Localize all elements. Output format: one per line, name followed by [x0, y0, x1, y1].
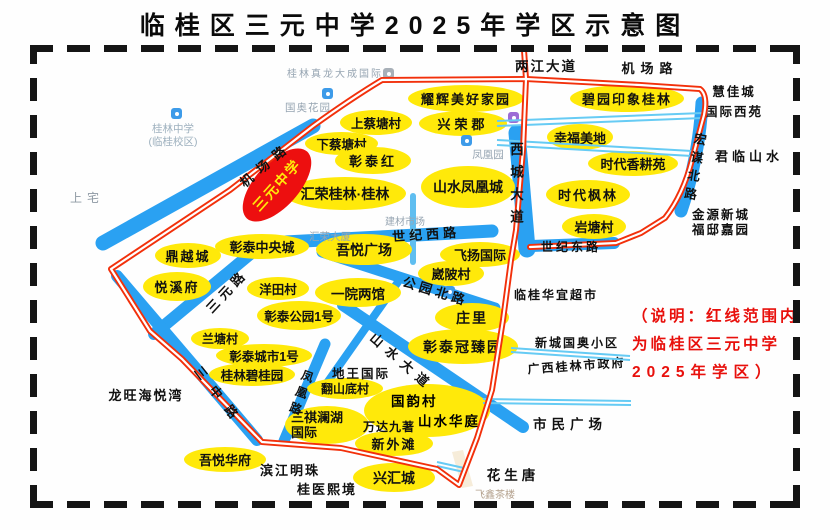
building-block — [452, 450, 473, 488]
road-label-liangjiang: 两江大道 — [512, 56, 580, 74]
road-label-shijidong: 世纪东路 — [536, 238, 606, 254]
legend-note-line1: （说明：红线范围内 — [632, 303, 799, 331]
poi-huirong-dasha: 汇荣大厦 — [300, 229, 360, 244]
poi-gzx-line1: 桂林中学 — [152, 123, 194, 136]
legend-note-line2: 为临桂区三元中学 — [632, 331, 799, 359]
road-label-shijixi: 世纪西路 — [391, 222, 460, 245]
poi-marker-icon — [461, 135, 472, 146]
poi-guilin-middle-school: 桂林中学 (临桂校区) — [133, 123, 213, 149]
legend-note-line3: 2025年学区） — [632, 359, 799, 387]
estate-yiyuan: 一院两馆 — [315, 278, 401, 307]
page-title: 临桂区三元中学2025年学区示意图 — [0, 6, 830, 42]
place-huijiacheng-line1: 慧佳城 — [712, 82, 756, 102]
estate-shangcaitang: 上蔡塘村 — [340, 110, 412, 135]
place-jinyuan-line1: 金源新城 — [692, 208, 750, 223]
estate-guanzhen: 彰泰冠臻园 — [408, 329, 518, 364]
estate-gongyuan1hao: 彰泰公园1号 — [257, 301, 341, 330]
poi-marker-icon — [322, 88, 333, 99]
poi-zhenlong: 桂林真龙大成国际 — [285, 65, 385, 80]
place-diwang: 地王国际 — [321, 363, 401, 382]
place-jinyuan: 金源新城 福邸嘉园 — [676, 208, 766, 238]
place-longwang: 龙旺海悦湾 — [96, 385, 196, 404]
poi-marker-icon — [171, 108, 182, 119]
estate-fenghuangcheng: 山水凤凰城 — [421, 166, 515, 208]
place-huijiacheng: 慧佳城 国际西苑 — [694, 82, 774, 122]
place-huayi: 临桂华宜超市 — [506, 286, 606, 303]
estate-yaohui: 耀辉美好家园 — [408, 85, 524, 112]
estate-fenglin: 时代枫林 — [546, 180, 630, 209]
place-huijiacheng-line2: 国际西苑 — [705, 102, 763, 122]
poi-marker-icon — [508, 112, 519, 123]
poi-gzx-line2: (临桂校区) — [149, 136, 198, 149]
estate-guoyun-label: 国韵村 — [391, 390, 438, 410]
estate-xianggeng: 时代香耕苑 — [588, 151, 678, 176]
legend-note: （说明：红线范围内 为临桂区三元中学 2025年学区） — [632, 303, 799, 387]
estate-xingfu: 幸福美地 — [547, 124, 613, 150]
poi-feixin-chalou: 飞鑫茶楼 — [465, 486, 525, 501]
road-label-jichang-top: 机场路 — [610, 58, 690, 76]
frame-left — [30, 45, 37, 508]
estate-yuexi: 悦溪府 — [143, 272, 211, 301]
place-shimin: 市民广场 — [520, 413, 620, 433]
estate-zhuangli: 庄里 — [435, 303, 509, 332]
place-jinyuan-line2: 福邸嘉园 — [692, 223, 750, 238]
estate-dingyue: 鼎越城 — [155, 243, 221, 268]
place-guiyi: 桂医熙境 — [282, 479, 372, 498]
poi-shangzhai: 上宅 — [62, 189, 112, 206]
estate-zhongyangcheng: 彰泰中央城 — [215, 234, 309, 259]
place-binjiang: 滨江明珠 — [245, 460, 335, 479]
place-huasheng: 花生唐 — [473, 464, 553, 484]
frame-top — [30, 45, 800, 52]
place-wanda: 万达九著 — [349, 418, 429, 435]
road-label-xicheng: 西城大道 — [505, 136, 525, 238]
estate-yantang: 岩塘村 — [562, 214, 626, 239]
estate-yangtian: 洋田村 — [247, 277, 309, 300]
school-district-map: 临桂区三元中学2025年学区示意图 耀辉美好家园 兴荣郡 上蔡塘村 下蔡塘村 彰… — [0, 0, 830, 530]
estate-biyuan: 碧园印象桂林 — [570, 85, 684, 112]
place-guoao-xiaoqu: 新城国奥小区 — [527, 334, 627, 351]
place-zhengfu: 广西桂林市政府 — [524, 353, 630, 377]
car-poi-icon — [383, 68, 394, 79]
estate-zhangtaihong: 彰泰红 — [335, 147, 411, 174]
poi-guoao-huayuan: 国奥花园 — [273, 100, 343, 115]
place-junlin: 君临山水 — [704, 146, 794, 165]
frame-bottom — [30, 501, 800, 508]
frame-right — [793, 45, 800, 508]
estate-xingrong: 兴荣郡 — [419, 111, 507, 136]
road-label-hongmou: 宏谋北路 — [677, 127, 711, 211]
